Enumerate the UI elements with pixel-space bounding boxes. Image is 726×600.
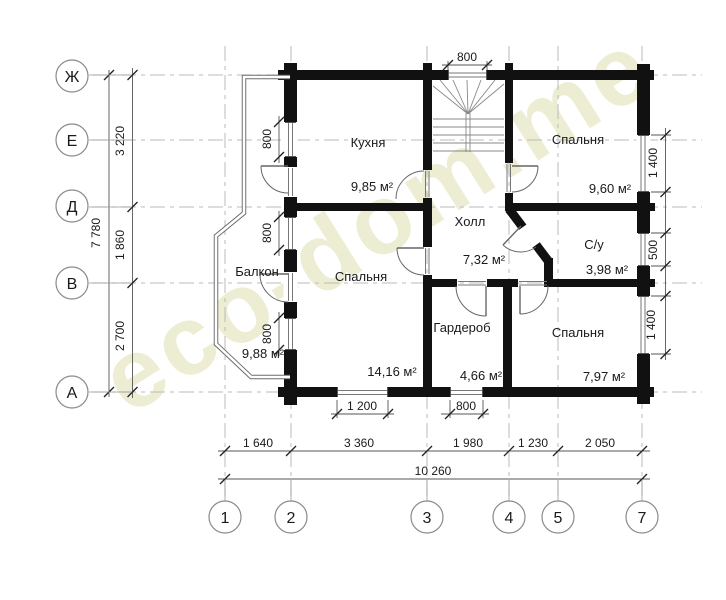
axis-col-2: 2	[287, 510, 296, 527]
axis-col-5: 5	[554, 510, 563, 527]
room-balcony-label: Балкон	[235, 264, 279, 279]
floor-plan-page: eco-dom.me	[0, 0, 726, 600]
dim-bottom-chain-4: 1 230	[518, 436, 548, 450]
axis-column-markers: 1 2 3 4 5 7	[209, 480, 658, 533]
dim-bottom-chain-1: 1 640	[243, 436, 273, 450]
dim-window-left-2: 800	[260, 223, 274, 243]
dim-window-right-3: 1 400	[644, 310, 658, 340]
dim-bottom-chain-5: 2 050	[585, 436, 615, 450]
axis-row-d: Д	[67, 199, 78, 216]
dim-left-chain-2: 1 860	[113, 230, 127, 260]
axis-row-e: Е	[67, 133, 78, 150]
dim-window-left-1: 800	[260, 129, 274, 149]
room-bathroom-area: 3,98 м²	[586, 262, 629, 277]
room-bathroom-label: С/у	[584, 237, 604, 252]
axis-row-v: В	[67, 276, 78, 293]
room-bedroombottom-area: 7,97 м²	[583, 369, 626, 384]
room-bedroombottom-label: Спальня	[552, 325, 604, 340]
axis-col-3: 3	[423, 510, 432, 527]
axis-col-4: 4	[505, 510, 514, 527]
axis-col-1: 1	[221, 510, 230, 527]
room-bedroomleft-label: Спальня	[335, 269, 387, 284]
room-hall-label: Холл	[455, 214, 486, 229]
dim-window-left-3: 800	[260, 324, 274, 344]
dim-bottom-chain-3: 1 980	[453, 436, 483, 450]
room-bedroomtop-area: 9,60 м²	[589, 181, 632, 196]
dim-left-total: 7 780	[89, 218, 103, 248]
room-hall-area: 7,32 м²	[463, 252, 506, 267]
room-bedroomtop-label: Спальня	[552, 132, 604, 147]
axis-col-7: 7	[638, 510, 647, 527]
dim-window-top: 800	[457, 50, 477, 64]
dim-window-bottom-2: 800	[456, 399, 476, 413]
room-kitchen-area: 9,85 м²	[351, 179, 394, 194]
room-bedroomleft-area: 14,16 м²	[367, 364, 417, 379]
axis-row-a: А	[67, 385, 78, 402]
door-hall-wardrobe	[456, 282, 486, 317]
room-wardrobe-label: Гардероб	[433, 320, 490, 335]
dim-left-chain-1: 3 220	[113, 126, 127, 156]
dim-window-right-1: 1 400	[646, 148, 660, 178]
dim-bottom-total: 10 260	[415, 464, 452, 478]
floor-plan-canvas: eco-dom.me	[0, 0, 726, 600]
dim-left-chain-3: 2 700	[113, 321, 127, 351]
door-hall-bedroombottom	[519, 282, 548, 315]
dim-window-bottom-1: 1 200	[347, 399, 377, 413]
axis-row-zh: Ж	[65, 69, 80, 86]
room-balcony-area: 9,88 м²	[242, 346, 285, 361]
room-kitchen-label: Кухня	[351, 135, 386, 150]
dim-window-right-2: 500	[646, 240, 660, 260]
dim-bottom-chain-2: 3 360	[344, 436, 374, 450]
room-wardrobe-area: 4,66 м²	[460, 368, 503, 383]
